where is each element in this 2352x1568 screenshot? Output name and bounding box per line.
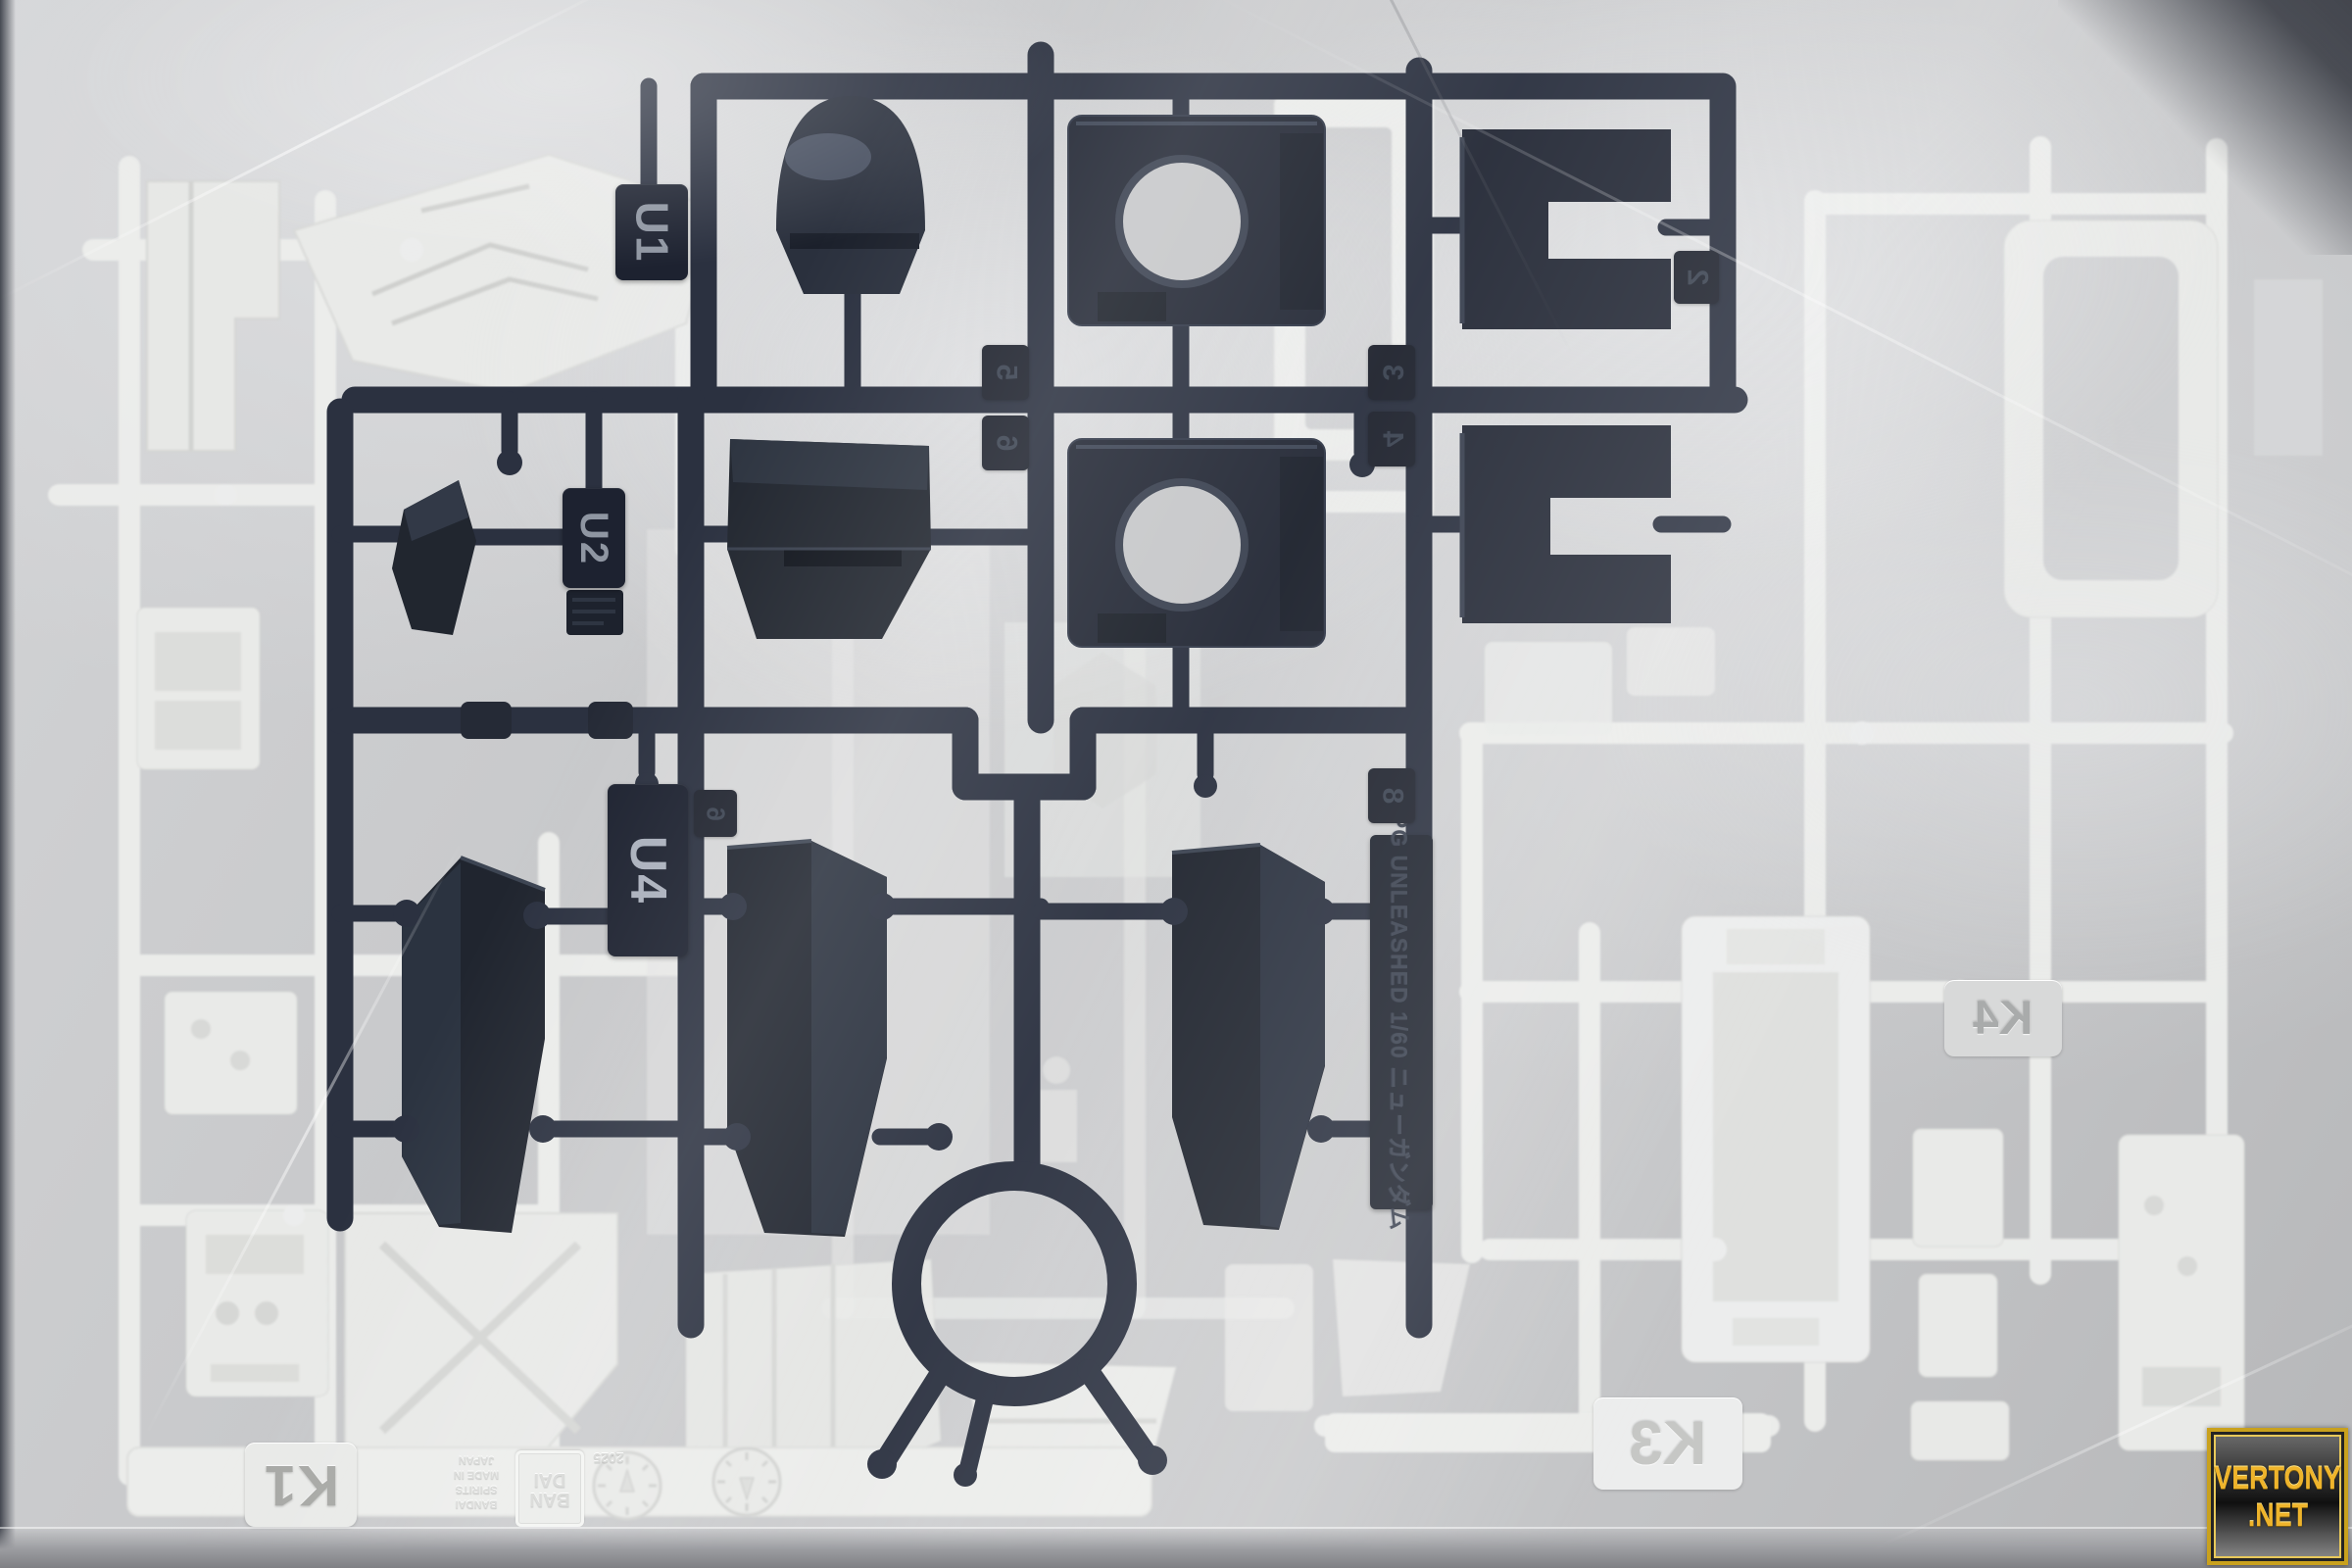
dark-sprue-tag-u1: U1 <box>615 184 688 280</box>
gate-number-2: 2 <box>1674 251 1719 304</box>
gate-number-8-label: 8 <box>1375 788 1408 805</box>
gate-number-6b-label: 6 <box>701 807 731 820</box>
kit-label-text: PG UNLEASHED 1/60 ニューガンダム <box>1385 813 1418 1231</box>
site-watermark: VERTONY .NET <box>2207 1428 2348 1565</box>
photo-of-sealed-sprues: K1 K3 K4 BAN DAI BANDAI SPIRITS MADE IN … <box>0 0 2352 1568</box>
dark-sprue-kit-label-tag: PG UNLEASHED 1/60 ニューガンダム <box>1370 835 1433 1209</box>
part-center-cowl <box>727 439 931 639</box>
part-connector-1 <box>461 702 512 739</box>
gate-number-6: 6 <box>982 416 1029 470</box>
dark-sprue-tag-u4: U4 <box>608 784 688 956</box>
tag-u2-label: U2 <box>571 511 615 564</box>
gate-number-5: 5 <box>982 345 1029 400</box>
bag-bottom-edge-highlight <box>0 1527 2352 1529</box>
part-c-bracket-a <box>1462 129 1671 329</box>
bag-bottom-edge <box>0 1527 2352 1568</box>
frame-edge-left <box>0 0 16 1568</box>
part-connector-2 <box>588 702 633 739</box>
part-core-box-a <box>1068 116 1325 325</box>
gate-number-3: 3 <box>1368 345 1415 400</box>
watermark-line2: .NET <box>2247 1497 2307 1534</box>
gate-number-6b: 6 <box>694 790 737 837</box>
gate-number-8: 8 <box>1368 768 1415 823</box>
gate-number-3-label: 3 <box>1375 365 1408 381</box>
gate-number-5-label: 5 <box>989 365 1022 381</box>
part-head-dome-highlight <box>785 133 871 180</box>
part-leg-armor-2 <box>727 841 887 1237</box>
part-head-dome <box>776 96 925 294</box>
gate-number-6-label: 6 <box>989 435 1022 452</box>
gate-number-4-label: 4 <box>1375 431 1408 448</box>
part-head-dome-slit <box>790 233 919 249</box>
dark-sprue-layer <box>0 0 2352 1568</box>
dark-sprue-tag-u2: U2 <box>563 488 625 588</box>
gate-number-2-label: 2 <box>1680 269 1713 286</box>
dark-ring-part <box>867 1176 1167 1487</box>
gate-number-4: 4 <box>1368 412 1415 466</box>
part-c-bracket-b <box>1462 425 1671 623</box>
frame-corner-top-right <box>2058 0 2352 255</box>
watermark-line1: VERTONY <box>2214 1460 2340 1496</box>
tag-u1-label: U1 <box>625 202 678 264</box>
part-leg-armor-3 <box>1172 845 1325 1230</box>
part-core-box-b <box>1068 439 1325 647</box>
tag-u4-label: U4 <box>618 836 677 905</box>
